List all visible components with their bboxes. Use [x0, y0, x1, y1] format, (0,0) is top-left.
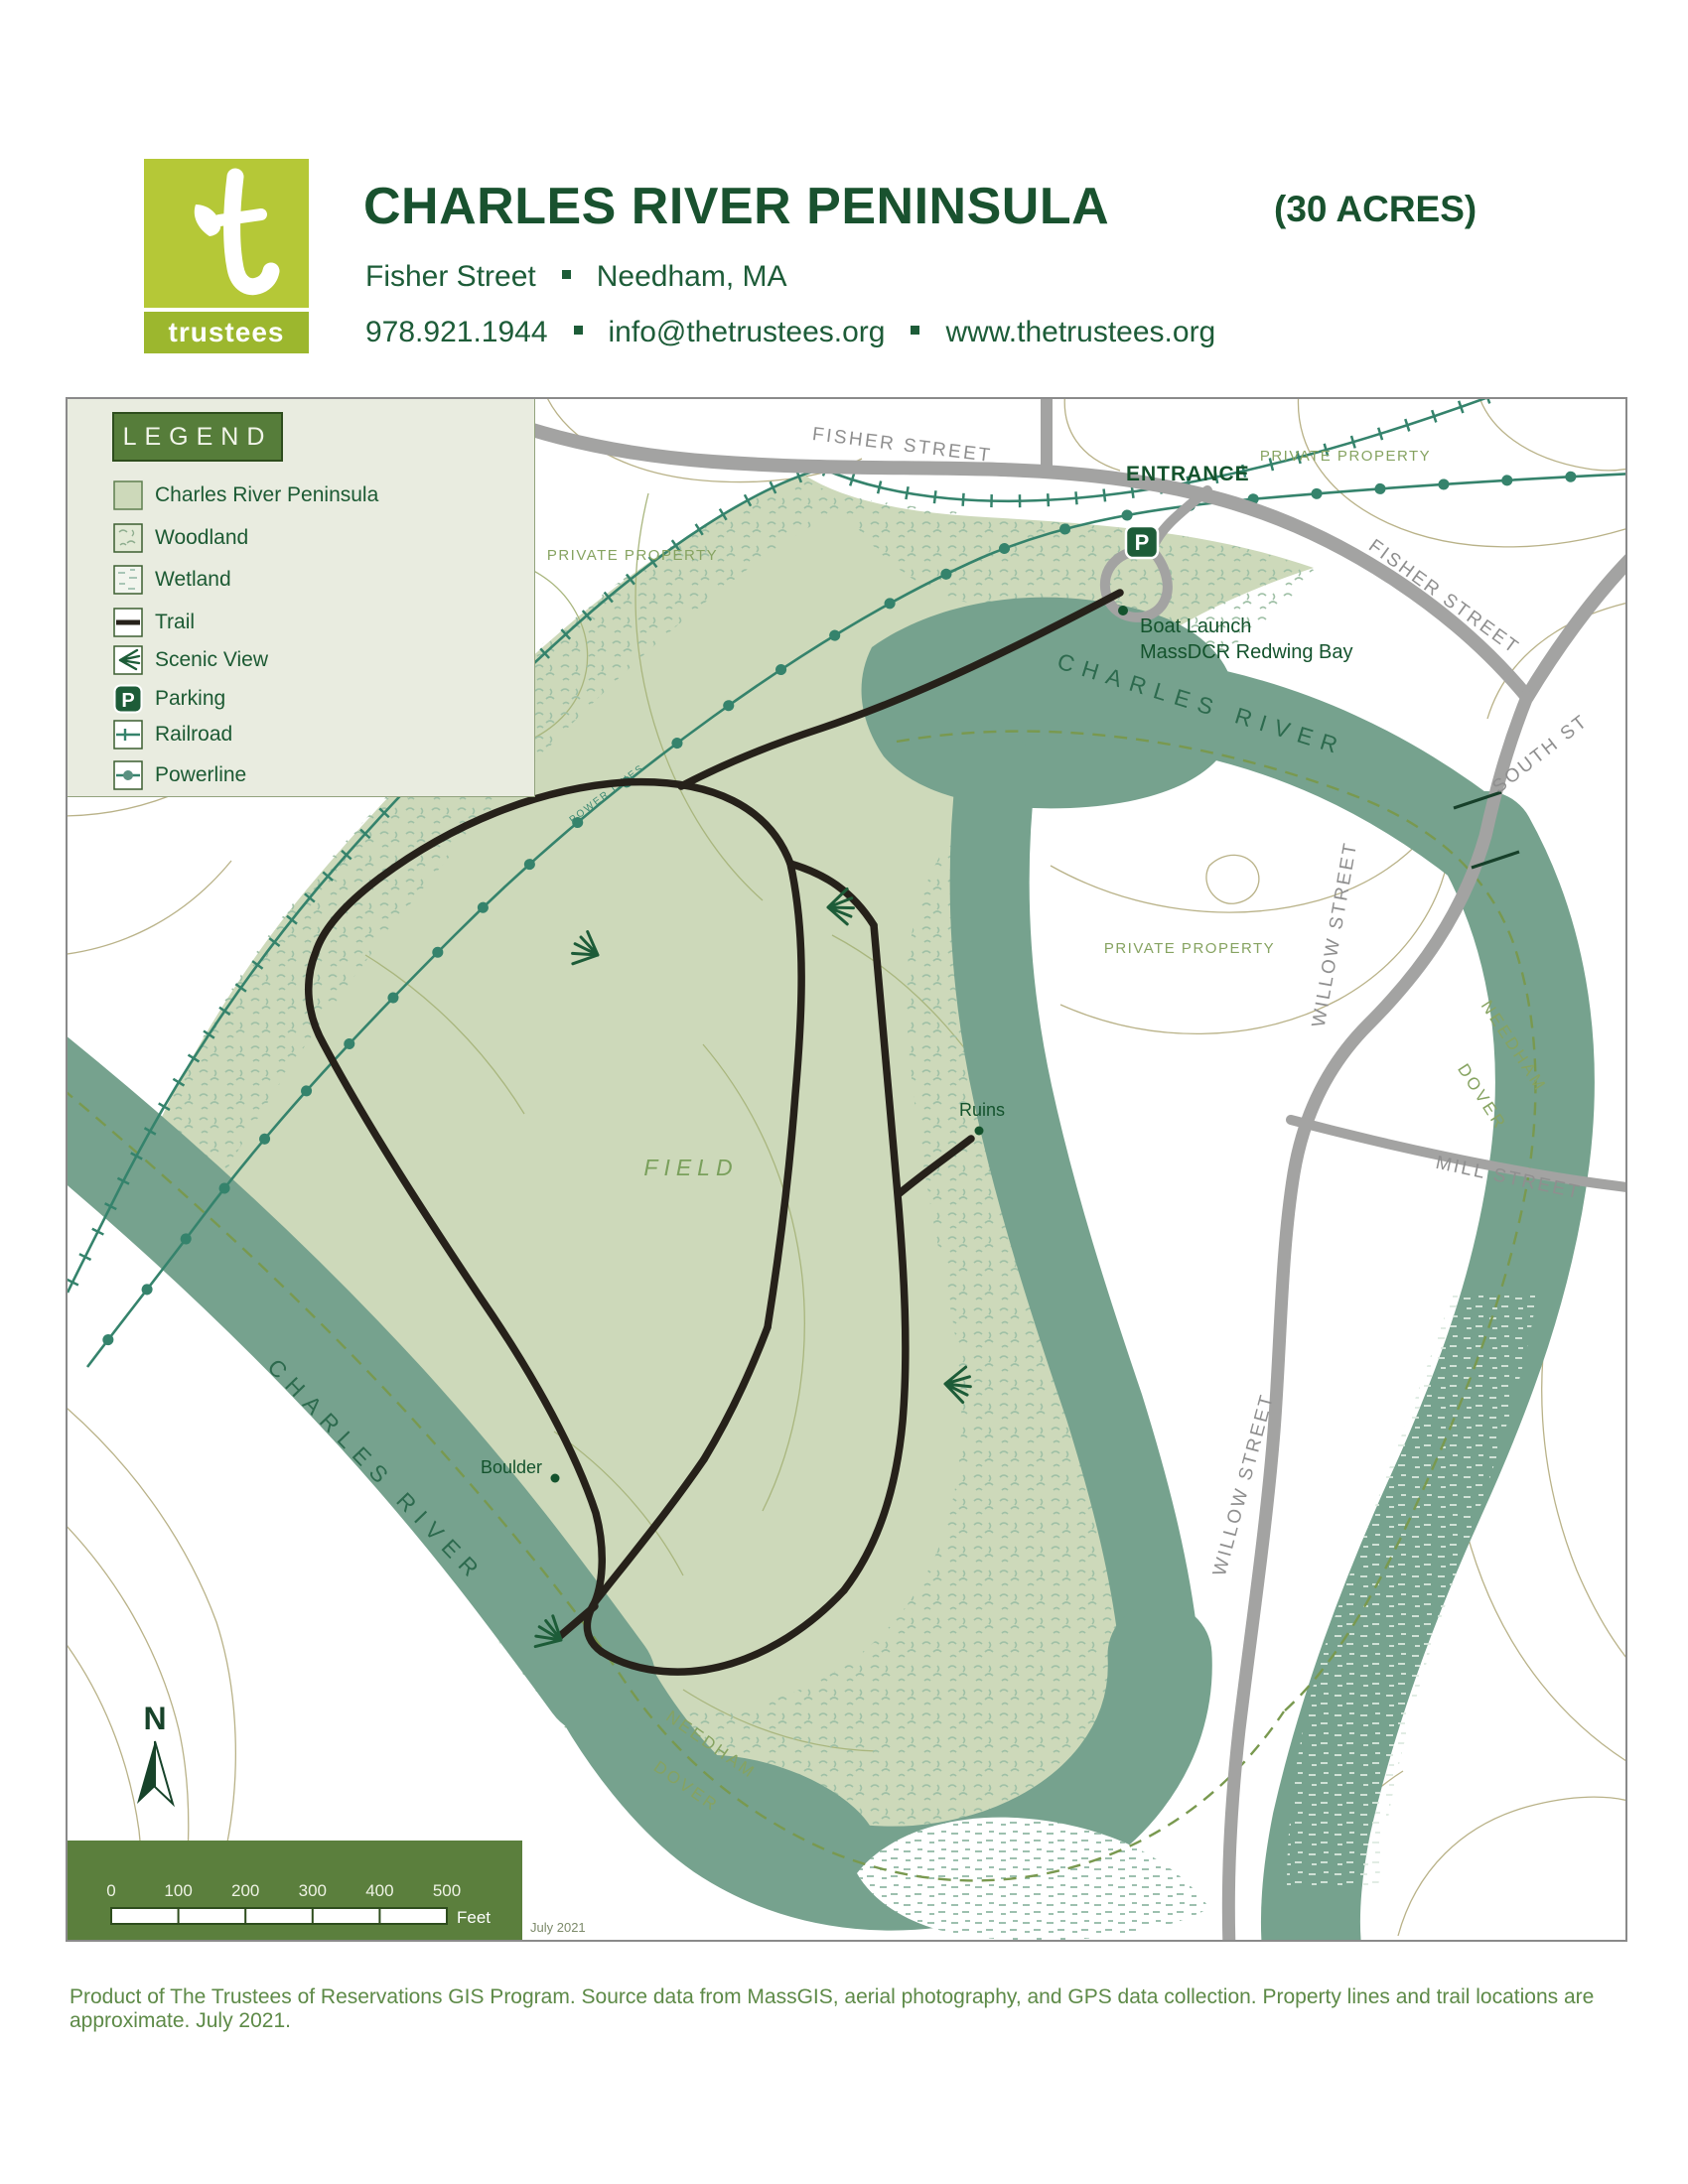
trustees-t-icon: [144, 159, 309, 308]
svg-text:P: P: [121, 690, 134, 712]
address-line: Fisher StreetNeedham, MA: [365, 260, 786, 294]
map-date-note: July 2021: [530, 1920, 586, 1935]
entrance-label: ENTRANCE: [1126, 463, 1250, 485]
contact-email: info@thetrustees.org: [609, 316, 886, 348]
trail-map: POWER LINES: [66, 397, 1627, 1942]
woodland-swatch-icon: [113, 523, 143, 553]
scale-bar: 0 100 200 300 400 500 Feet: [68, 1841, 522, 1940]
scale-unit-label: Feet: [457, 1908, 491, 1927]
scale-tick-300: 300: [299, 1881, 327, 1900]
legend-title: LEGEND: [112, 412, 283, 462]
powerline-swatch-icon: [113, 760, 143, 790]
wetland-swatch-icon: [113, 565, 143, 595]
scale-tick-100: 100: [164, 1881, 192, 1900]
boulder-dot: [551, 1474, 560, 1483]
parking-icon: P: [1126, 526, 1158, 558]
address-street: Fisher Street: [365, 260, 536, 293]
trustees-wordmark: trustees: [144, 312, 309, 353]
scale-tick-0: 0: [106, 1881, 115, 1900]
ruins-label: Ruins: [959, 1100, 1005, 1120]
railroad-swatch-icon: [113, 720, 143, 750]
contact-phone: 978.921.1944: [365, 316, 548, 348]
boat-launch-detail-label: MassDCR Redwing Bay: [1140, 641, 1353, 663]
trail-swatch-icon: [113, 608, 143, 637]
peninsula-swatch-icon: [113, 480, 143, 510]
boat-launch-label: Boat Launch: [1140, 615, 1251, 637]
scale-tick-400: 400: [365, 1881, 393, 1900]
contact-website: www.thetrustees.org: [945, 316, 1215, 348]
contact-line: 978.921.1944info@thetrustees.orgwww.thet…: [365, 316, 1215, 349]
square-bullet-icon: [562, 270, 571, 279]
north-label: N: [143, 1701, 166, 1736]
square-bullet-icon: [574, 326, 583, 335]
parking-letter: P: [1135, 530, 1150, 555]
private-property-label-ne: PRIVATE PROPERTY: [1260, 448, 1431, 465]
scale-tick-200: 200: [231, 1881, 259, 1900]
acreage-label: (30 ACRES): [1274, 189, 1477, 230]
boat-launch-dot: [1118, 606, 1128, 615]
ruins-dot: [975, 1127, 984, 1136]
field-label: FIELD: [643, 1155, 738, 1180]
page: trustees CHARLES RIVER PENINSULA (30 ACR…: [0, 0, 1688, 2184]
trustees-logo: trustees: [144, 159, 309, 353]
parking-swatch-icon: P: [113, 684, 143, 714]
map-credit: Product of The Trustees of Reservations …: [70, 1985, 1628, 2033]
boulder-label: Boulder: [481, 1457, 542, 1477]
willow-street-upper-label: WILLOW STREET: [1309, 840, 1362, 1029]
north-arrow: N: [137, 1701, 173, 1804]
scale-tick-500: 500: [433, 1881, 461, 1900]
wooded-swamp-area: [1287, 1293, 1537, 1888]
scenic-view-swatch-icon: [113, 645, 143, 675]
trustees-logo-icon: [144, 159, 309, 308]
private-property-label-e: PRIVATE PROPERTY: [1104, 940, 1275, 957]
fisher-street-east-label: FISHER STREET: [1364, 535, 1523, 658]
address-town: Needham, MA: [597, 260, 787, 293]
page-title: CHARLES RIVER PENINSULA: [363, 177, 1109, 236]
legend-panel: LEGEND Charles River Peninsula Woodland: [68, 399, 535, 797]
square-bullet-icon: [911, 326, 919, 335]
private-property-label-nw: PRIVATE PROPERTY: [547, 547, 718, 564]
